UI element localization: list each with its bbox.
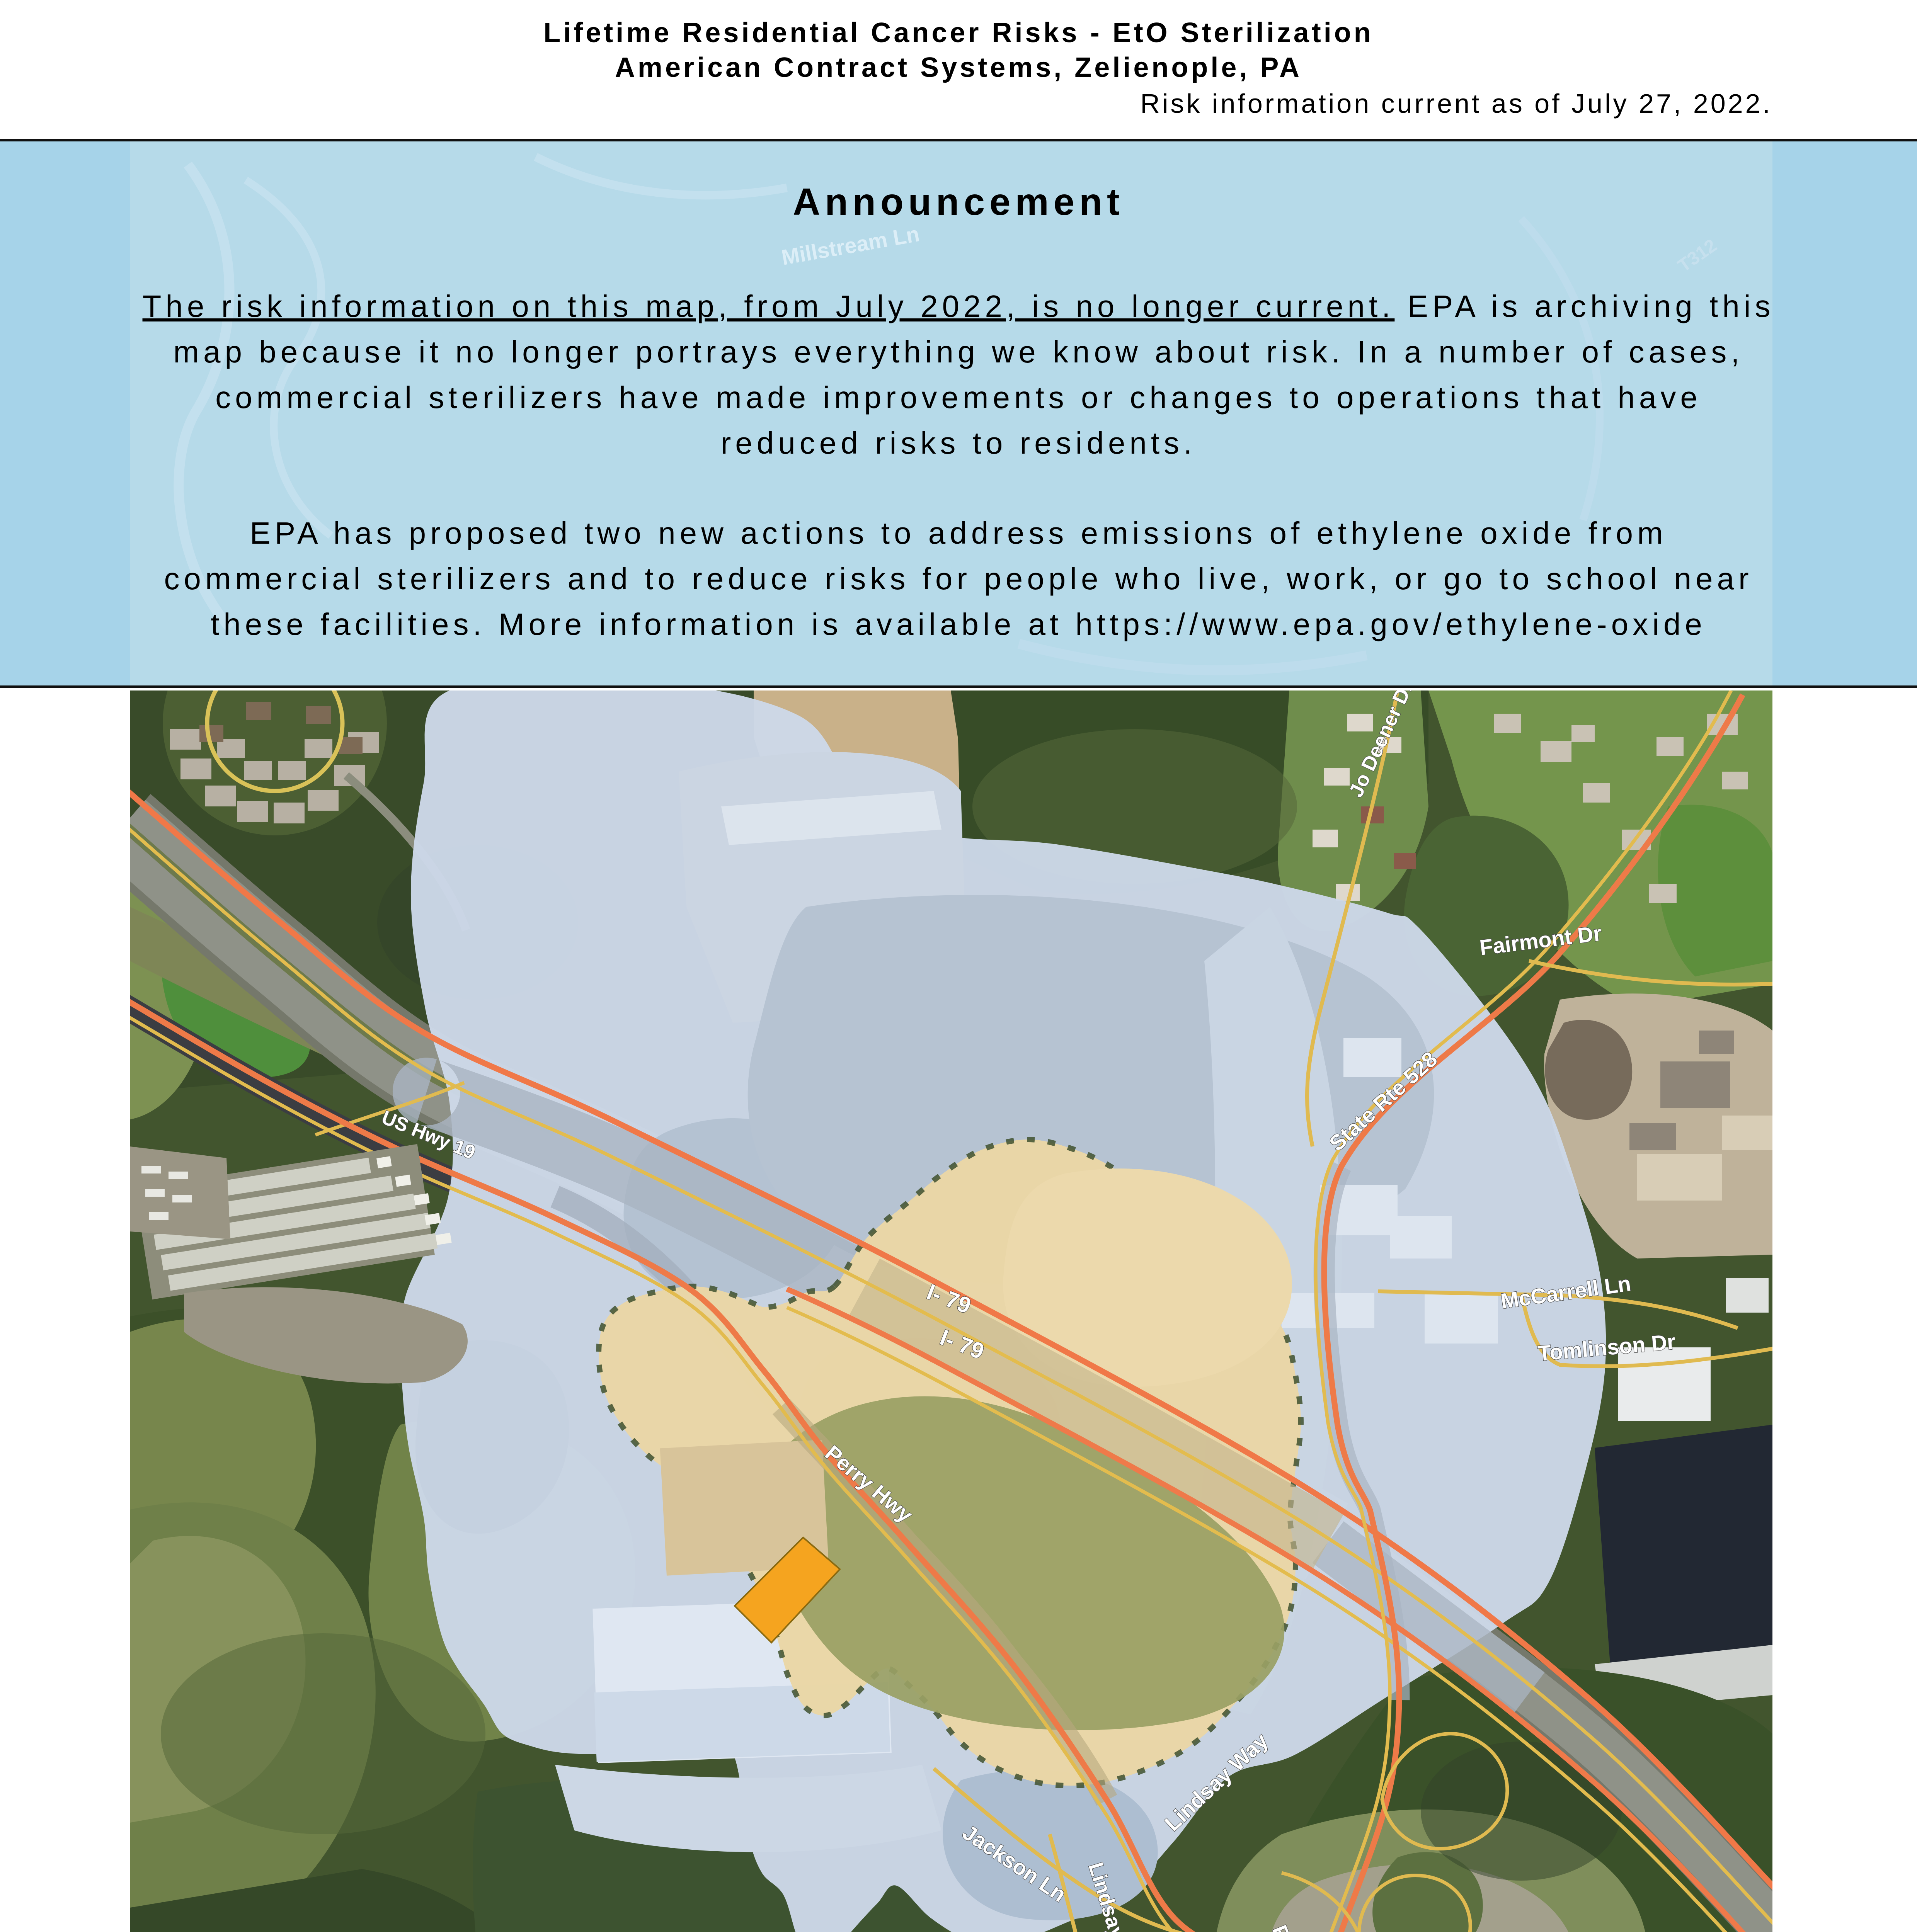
- svg-text:T312: T312: [1674, 235, 1721, 276]
- svg-text:Millstream Ln: Millstream Ln: [780, 221, 921, 270]
